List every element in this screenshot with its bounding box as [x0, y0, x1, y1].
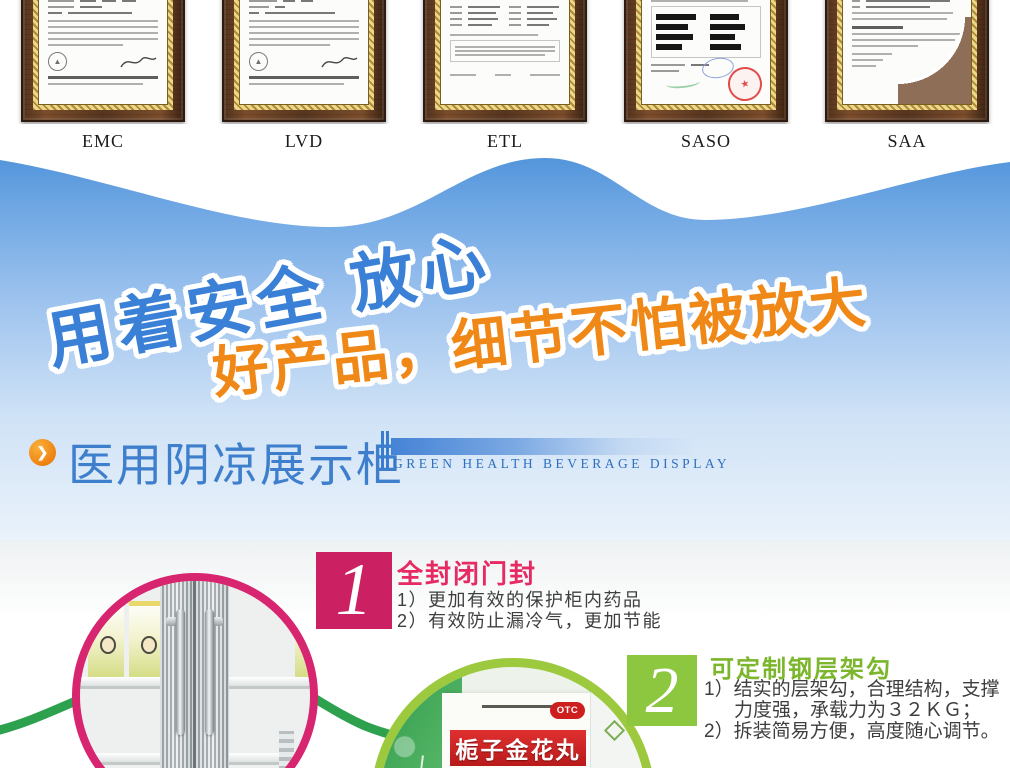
feature-1-description: 1）更加有效的保护柜内药品 2）有效防止漏冷气，更加节能: [397, 590, 662, 632]
diamond-logo-icon: [604, 720, 625, 741]
certificate-document: ★: [641, 0, 771, 105]
frame-gold-trim: ▲: [234, 0, 374, 110]
box-fine-print: [482, 705, 554, 708]
certificate-document: [440, 0, 570, 105]
otc-badge: OTC: [550, 702, 585, 719]
product-detail-page: ▲ ▲: [0, 0, 1010, 768]
feature-1-line-2: 2）有效防止漏冷气，更加节能: [397, 611, 662, 632]
feature-1-title: 全封闭门封: [397, 554, 537, 591]
certificate-label-emc: EMC: [21, 131, 185, 152]
feature-2-line-2: 2）拆装简易方便，高度随心调节。: [704, 721, 1010, 742]
feature-2-line-1: 1）结实的层架勾，合理结构，支撑力度强，承载力为３２ＫＧ；: [704, 679, 1010, 721]
product-photo-door-seal: [72, 573, 318, 768]
certificate-label-etl: ETL: [423, 131, 587, 152]
medicine-box: OTC 栀子金花丸 ZHIZI JINHUA WAN: [442, 693, 594, 768]
certificate-frame-lvd: ▲: [222, 0, 386, 122]
feature-2-description: 1）结实的层架勾，合理结构，支撑力度强，承载力为３２ＫＧ； 2）拆装简易方便，高…: [704, 679, 1010, 742]
certificate-frame-saa: [825, 0, 989, 122]
feature-number-1: 1: [316, 552, 392, 629]
frame-gold-trim: ★: [636, 0, 776, 110]
feature-1-line-1: 1）更加有效的保护柜内药品: [397, 590, 662, 611]
hero-banner: 用着安全 放心 好产品，细节不怕被放大 ❯ 医用阴凉展示柜 GREEN HEAL…: [0, 150, 1010, 540]
feature-number-2: 2: [627, 655, 697, 726]
door-handle-right: [205, 609, 214, 735]
signature-icon: [118, 54, 158, 70]
section-subtitle: GREEN HEALTH BEVERAGE DISPLAY: [393, 456, 730, 472]
certificate-document: ▲: [239, 0, 369, 105]
section-title: 医用阴凉展示柜: [68, 429, 404, 495]
certificate-document: [842, 0, 972, 105]
certificate-frame-emc: ▲: [21, 0, 185, 122]
door-handle-left: [176, 609, 185, 735]
frame-gold-trim: [435, 0, 575, 110]
wave-divider: [0, 150, 1010, 240]
frame-gold-trim: [837, 0, 977, 110]
page-curl-decoration: [898, 17, 972, 105]
certificate-document: ▲: [38, 0, 168, 105]
shelf-bracket: [279, 731, 294, 768]
features-section: 1 全封闭门封 1）更加有效的保护柜内药品 2）有效防止漏冷气，更加节能 OTC…: [0, 540, 1010, 768]
certificates-row: ▲ ▲: [0, 0, 1010, 124]
certificate-labels-row: EMC LVD ETL SASO SAA: [0, 131, 1010, 152]
stamp-swirl-icon: [666, 76, 701, 89]
chevron-right-icon: ❯: [29, 439, 56, 466]
product-name-banner: 栀子金花丸: [450, 730, 586, 766]
title-gradient-bar: [391, 438, 697, 455]
frame-gold-trim: ▲: [33, 0, 173, 110]
tuv-logo-icon: ▲: [249, 52, 268, 71]
certificate-label-saso: SASO: [624, 131, 788, 152]
tuv-logo-icon: ▲: [48, 52, 67, 71]
certificate-label-saa: SAA: [825, 131, 989, 152]
door-seal-gap: [193, 581, 196, 768]
signature-icon: [319, 54, 359, 70]
certificate-label-lvd: LVD: [222, 131, 386, 152]
certificate-frame-etl: [423, 0, 587, 122]
product-name: 栀子金花丸: [456, 731, 581, 765]
certificate-frame-saso: ★: [624, 0, 788, 122]
title-divider-bars: [381, 431, 389, 469]
